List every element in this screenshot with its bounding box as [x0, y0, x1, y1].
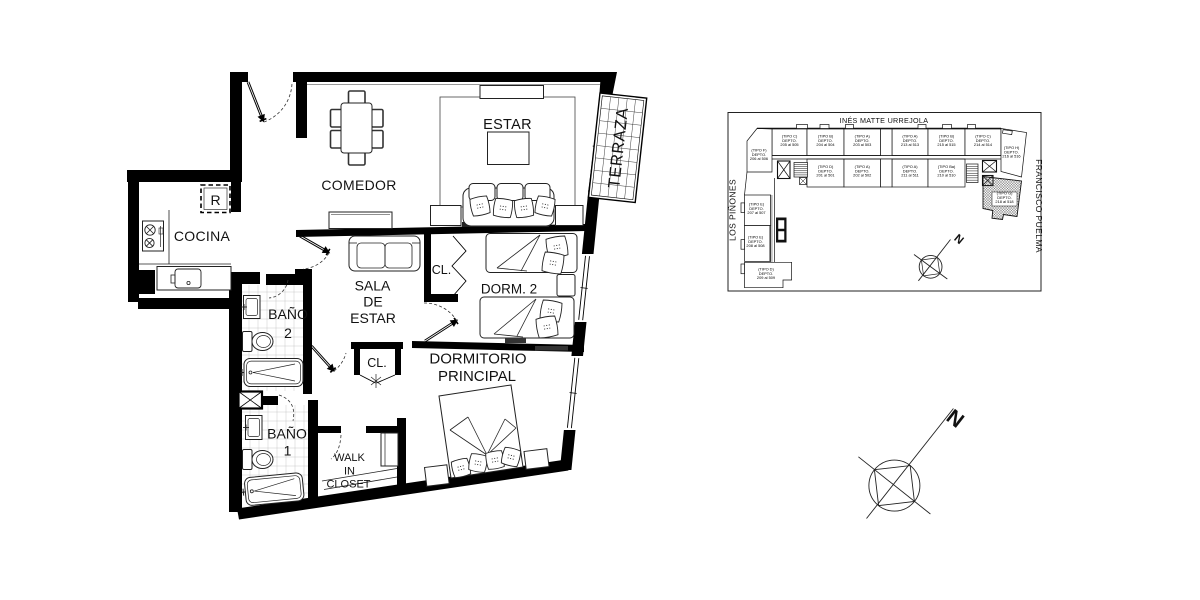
svg-text:204 al 504: 204 al 504 [816, 142, 835, 147]
svg-text:DE: DE [363, 294, 382, 310]
svg-text:1: 1 [284, 443, 292, 459]
svg-text:DORMITORIO: DORMITORIO [429, 351, 526, 368]
svg-text:205 al 505: 205 al 505 [780, 142, 798, 147]
svg-text:216 al 516: 216 al 516 [1002, 154, 1020, 159]
svg-text:IN: IN [344, 466, 355, 478]
svg-text:203 al 503: 203 al 503 [853, 142, 871, 147]
svg-text:209 al 509: 209 al 509 [757, 275, 775, 280]
svg-text:BAÑO: BAÑO [268, 306, 308, 322]
svg-text:SALA: SALA [355, 278, 391, 294]
svg-text:WALK: WALK [334, 452, 365, 464]
svg-text:202 al 502: 202 al 502 [853, 173, 871, 178]
svg-text:201 al 501: 201 al 501 [816, 173, 834, 178]
svg-text:ESTAR: ESTAR [483, 117, 532, 133]
svg-text:COCINA: COCINA [174, 228, 231, 244]
svg-text:2: 2 [284, 325, 292, 341]
svg-text:214 al 514: 214 al 514 [974, 142, 993, 147]
svg-text:DORM. 2: DORM. 2 [481, 282, 537, 297]
svg-text:BAÑO: BAÑO [267, 426, 307, 442]
svg-text:211 al 511: 211 al 511 [901, 173, 919, 178]
svg-text:R: R [210, 192, 220, 208]
svg-text:CLOSET: CLOSET [326, 479, 370, 491]
svg-text:CL.: CL. [432, 263, 451, 277]
svg-text:213 al 513: 213 al 513 [901, 142, 919, 147]
svg-text:218 al 518: 218 al 518 [995, 199, 1013, 204]
svg-text:FRANCISCO PUELMA: FRANCISCO PUELMA [1034, 159, 1044, 253]
svg-text:215 al 515: 215 al 515 [937, 142, 955, 147]
svg-text:ESTAR: ESTAR [350, 310, 396, 326]
svg-text:LOS PIÑONES: LOS PIÑONES [728, 179, 738, 241]
svg-text:COMEDOR: COMEDOR [321, 177, 396, 193]
svg-text:206 al 506: 206 al 506 [750, 156, 768, 161]
svg-text:208 al 508: 208 al 508 [746, 243, 764, 248]
svg-text:PRINCIPAL: PRINCIPAL [438, 368, 516, 385]
svg-text:CL.: CL. [367, 356, 386, 370]
svg-text:INÉS MATTE URREJOLA: INÉS MATTE URREJOLA [840, 116, 929, 125]
svg-text:207 al 507: 207 al 507 [747, 210, 765, 215]
svg-text:210 al 510: 210 al 510 [937, 173, 956, 178]
